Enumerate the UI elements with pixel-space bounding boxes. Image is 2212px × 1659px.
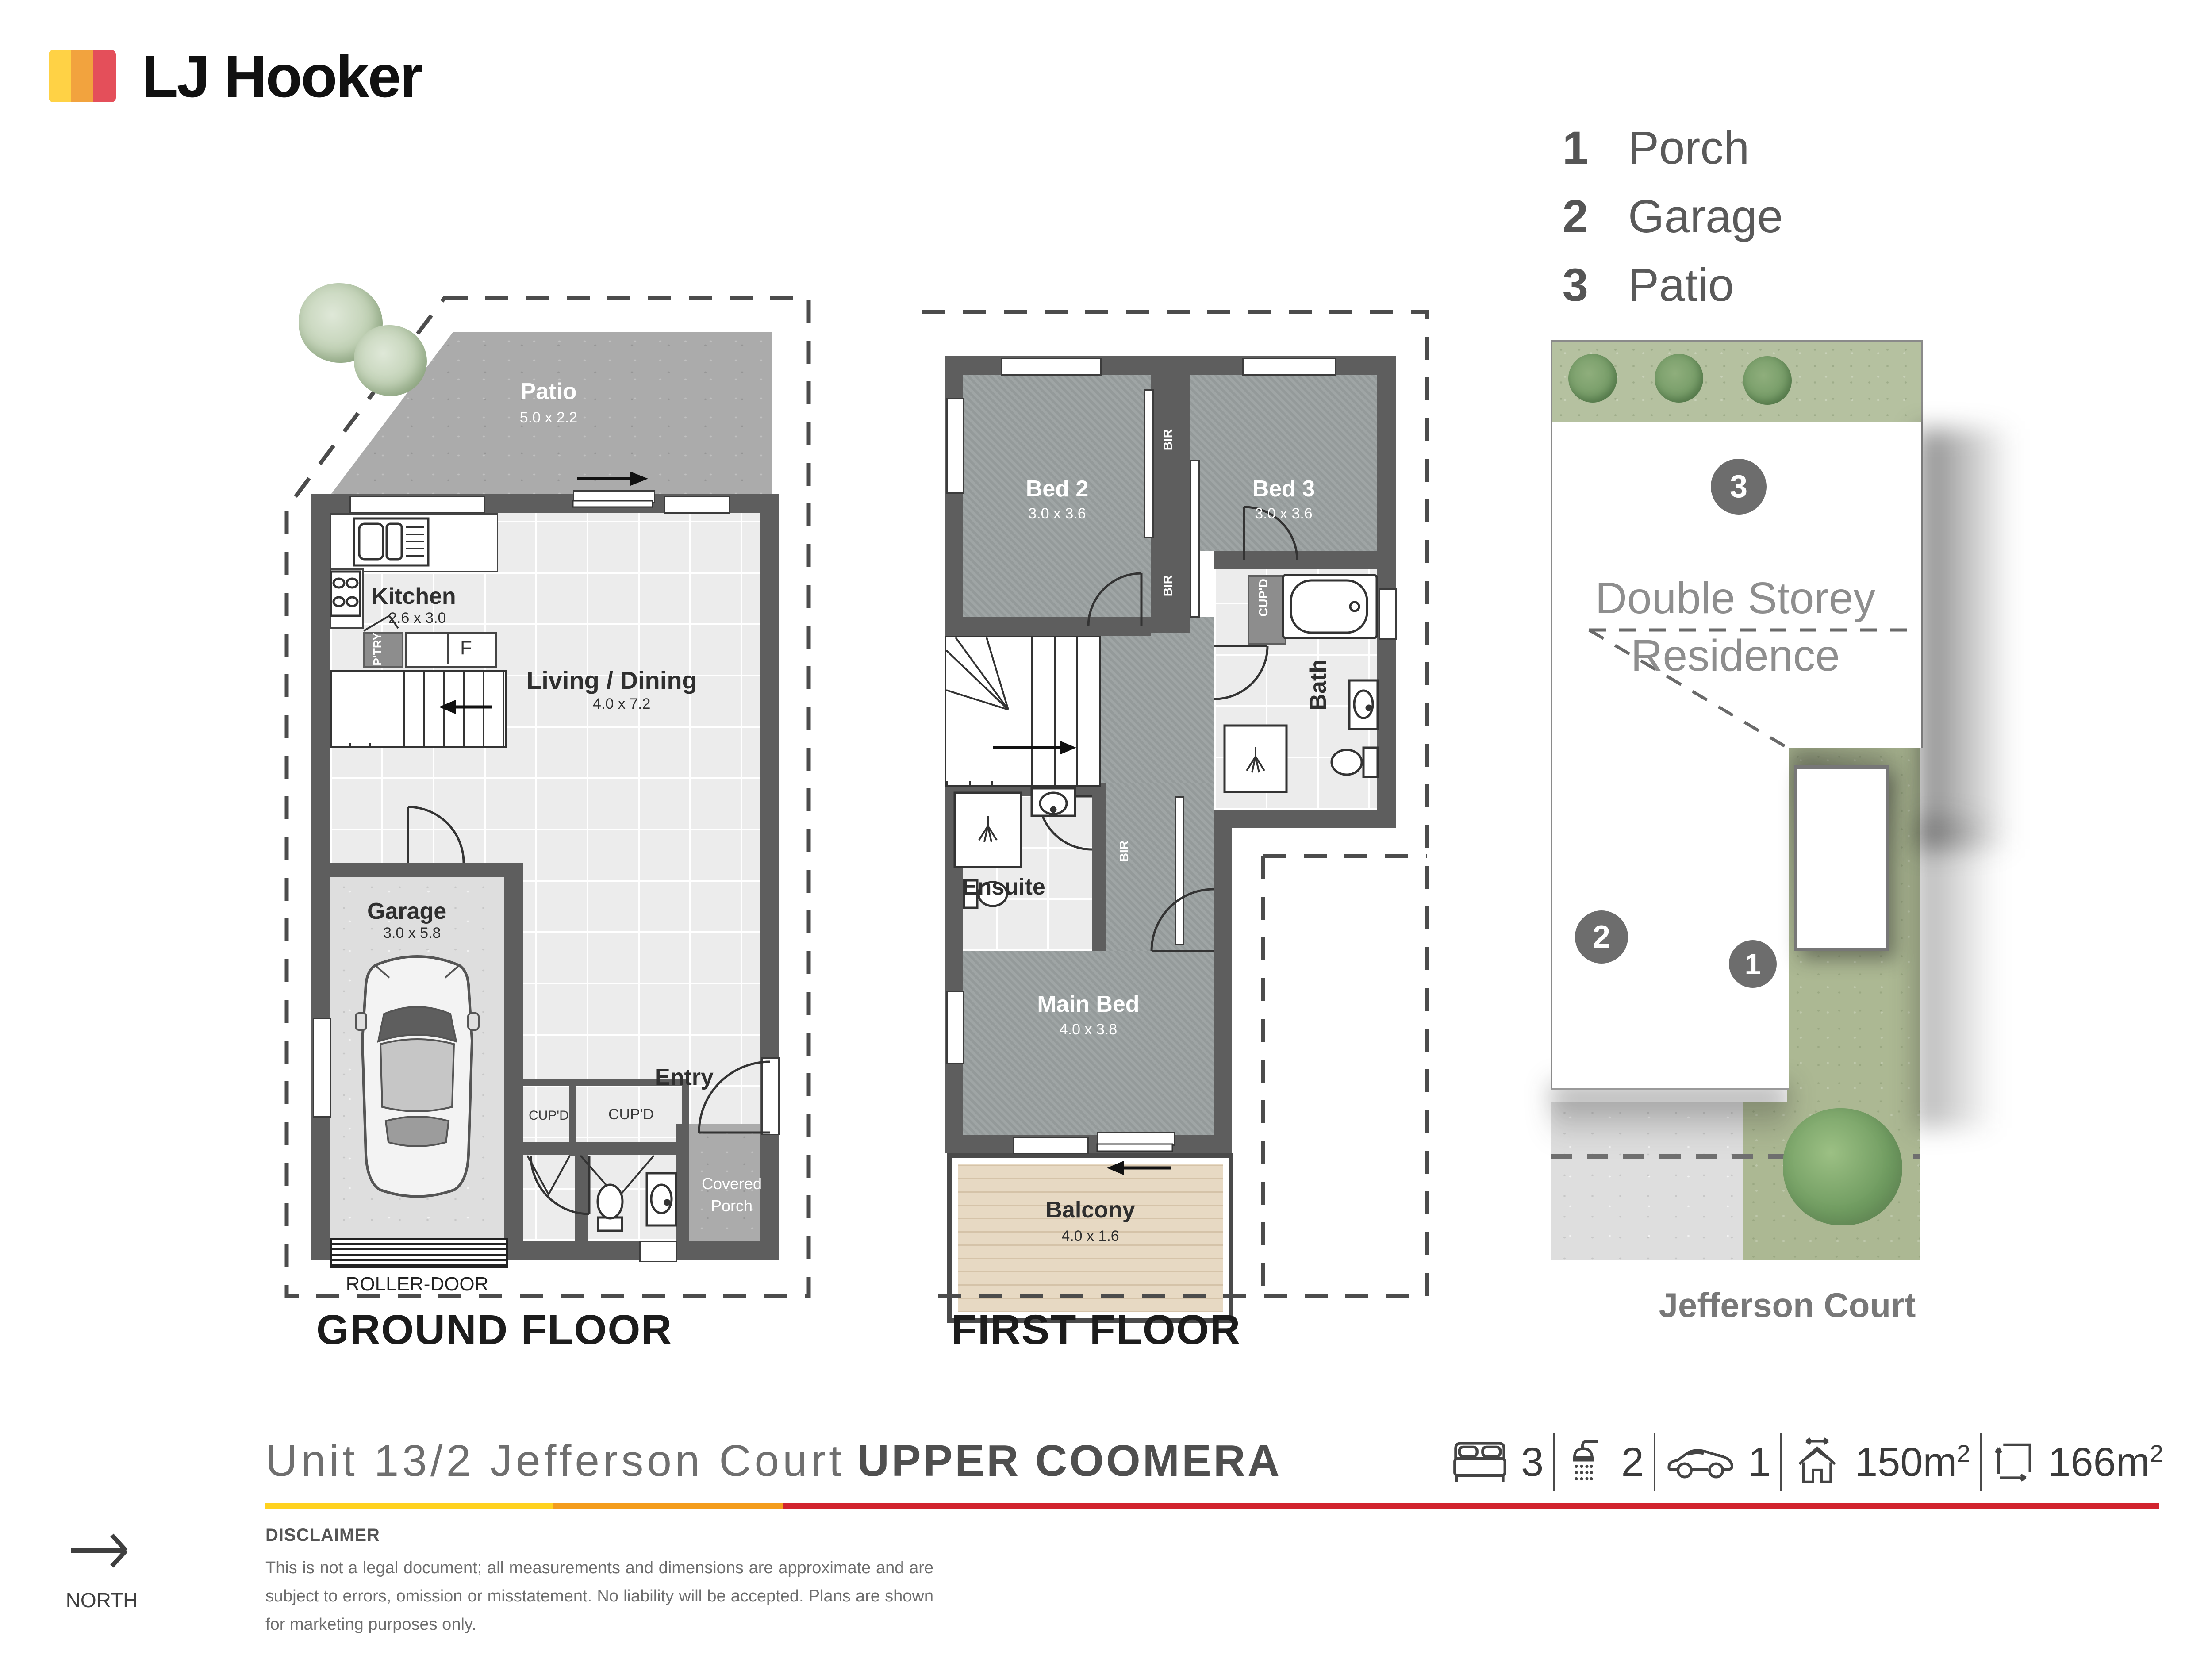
ff-balcony-dims: 4.0 x 1.6 xyxy=(947,1228,1233,1245)
gf-garage-wall-right xyxy=(504,863,523,1260)
ff-bed2-dims: 3.0 x 3.6 xyxy=(963,505,1151,522)
gf-garage-dims: 3.0 x 5.8 xyxy=(383,925,441,942)
address-street: Unit 13/2 Jefferson Court xyxy=(265,1436,845,1486)
disclaimer-title: DISCLAIMER xyxy=(265,1525,380,1545)
site-street-label: Jefferson Court xyxy=(1610,1285,1964,1325)
ff-bath-floor xyxy=(1214,569,1377,810)
ff-balcony-label: Balcony xyxy=(947,1197,1233,1223)
floorplan-page: LJ Hooker 1 Porch 2 Garage 3 Patio Patio… xyxy=(0,0,2212,1659)
ff-mainbed-side-window xyxy=(946,991,964,1064)
ff-wall-right-lower xyxy=(1214,810,1232,1153)
gf-fridge-divider xyxy=(447,634,449,664)
ff-bed3-wall-bottom xyxy=(1214,551,1396,569)
site-badge-garage: 2 xyxy=(1575,910,1628,964)
bush-icon xyxy=(1568,354,1617,403)
stat-beds-value: 3 xyxy=(1521,1439,1544,1486)
ff-bath-wall-bottom xyxy=(1214,810,1396,828)
gf-fridge-label: F xyxy=(460,637,472,659)
logo-text: LJ Hooker xyxy=(142,42,422,111)
ff-mainbed-label: Main Bed xyxy=(963,991,1214,1018)
stat-beds: 3 xyxy=(1451,1439,1544,1486)
ff-bed2-window xyxy=(1001,358,1102,376)
ff-mainbed-window xyxy=(1013,1137,1089,1154)
bush-icon xyxy=(1655,354,1703,403)
gf-kitchen-dims: 2.6 x 3.0 xyxy=(388,610,446,627)
brand-rule xyxy=(265,1503,2159,1509)
stat-baths: 2 xyxy=(1565,1437,1644,1488)
legend-num-3: 3 xyxy=(1548,259,1588,312)
ff-bed3-window xyxy=(1242,358,1336,376)
ff-bir1-label: BIR xyxy=(1161,429,1175,450)
first-floor-title: FIRST FLOOR xyxy=(951,1306,1241,1354)
gf-covered-porch-label1: Covered xyxy=(689,1175,774,1193)
stat-divider xyxy=(1780,1433,1782,1491)
disclaimer-body: This is not a legal document; all measur… xyxy=(265,1554,933,1639)
ff-mainbed-dims: 4.0 x 3.8 xyxy=(963,1021,1214,1038)
logo-stripe-red xyxy=(93,50,116,102)
rule-red xyxy=(783,1503,2159,1509)
gf-front-door-opening xyxy=(761,1057,780,1135)
ff-bed3-floor xyxy=(1190,375,1377,551)
gf-entry-label: Entry xyxy=(655,1064,714,1091)
ff-bed2-side-window xyxy=(946,398,964,494)
gf-covered-porch-label2: Porch xyxy=(689,1197,774,1215)
gf-cupd2-label: CUP'D xyxy=(608,1106,654,1123)
gf-cupd1-label: CUP'D xyxy=(529,1108,569,1123)
ff-bir-main-slider xyxy=(1175,796,1184,945)
site-badge-porch: 1 xyxy=(1729,940,1777,988)
stat-divider xyxy=(1980,1433,1982,1491)
gf-porch-threshold xyxy=(639,1241,677,1262)
ff-bir3-label: BIR xyxy=(1117,841,1131,862)
legend-label-garage: Garage xyxy=(1628,190,1783,243)
gf-roller-door xyxy=(330,1238,508,1268)
land-area-icon xyxy=(1991,1437,2035,1488)
gf-pantry-label: P'TRY xyxy=(371,633,384,666)
site-residence-label1: Double Storey xyxy=(1551,573,1920,624)
ff-cupd-label: CUP'D xyxy=(1256,579,1271,617)
bush-icon xyxy=(1743,356,1792,405)
gf-fridge xyxy=(405,632,497,668)
rule-orange xyxy=(553,1503,783,1509)
north-arrow-icon xyxy=(66,1522,146,1579)
gf-kitchen-counter-left xyxy=(330,568,364,629)
large-tree-icon xyxy=(1783,1108,1902,1225)
ff-ensuite-bir-wall xyxy=(1092,783,1106,951)
stat-divider xyxy=(1553,1433,1555,1491)
gf-wall-right xyxy=(760,494,779,1260)
gf-patio-dims: 5.0 x 2.2 xyxy=(482,409,615,426)
gf-wc-wall-top xyxy=(523,1142,683,1155)
ff-ensuite-label: Ensuite xyxy=(962,874,1045,900)
ff-boundary-step-dashed xyxy=(1263,856,1427,1296)
rule-yellow xyxy=(265,1503,553,1509)
ff-bed2-label: Bed 2 xyxy=(963,476,1151,502)
stat-baths-value: 2 xyxy=(1621,1439,1644,1486)
gf-roller-door-label: ROLLER-DOOR xyxy=(330,1273,504,1295)
tree-icon xyxy=(354,325,427,396)
ff-bir-main-floor xyxy=(1106,783,1214,951)
gf-wall-left xyxy=(311,494,330,1260)
stat-land-area: 166m2 xyxy=(1991,1437,2163,1488)
ff-bir2-label: BIR xyxy=(1161,575,1175,596)
ff-balcony-slider-door xyxy=(1097,1132,1175,1146)
address-suburb: UPPER COOMERA xyxy=(857,1436,1282,1486)
gf-living-window xyxy=(664,496,730,514)
building-shadow-bottom xyxy=(1551,1084,1790,1141)
ff-bed3-dims: 3.0 x 3.6 xyxy=(1190,505,1377,522)
gf-patio-label: Patio xyxy=(482,378,615,405)
gf-kitchen-window xyxy=(349,496,485,514)
legend-num-2: 2 xyxy=(1548,190,1588,243)
property-stats: 3 2 xyxy=(1451,1427,2163,1498)
site-porch-wing xyxy=(1794,765,1889,951)
ff-bed2-wall-bottom xyxy=(945,617,1151,636)
address: Unit 13/2 Jefferson Court UPPER COOMERA xyxy=(265,1436,1282,1486)
ff-ensuite-floor xyxy=(945,783,1092,951)
gf-living-label: Living / Dining xyxy=(526,666,697,695)
house-area-icon xyxy=(1792,1437,1843,1488)
legend-num-1: 1 xyxy=(1548,122,1588,175)
gf-wc-wall-side xyxy=(575,1155,588,1241)
car-icon xyxy=(1665,1440,1736,1484)
stat-divider xyxy=(1654,1433,1655,1491)
ff-bed3-label: Bed 3 xyxy=(1190,476,1377,502)
gf-garage-side-window xyxy=(313,1018,331,1118)
building-shadow xyxy=(1916,818,2017,1128)
logo-stripes-icon xyxy=(49,50,116,102)
gf-stairs-landing xyxy=(332,672,383,743)
shower-icon xyxy=(1565,1437,1609,1488)
legend-label-patio: Patio xyxy=(1628,259,1734,312)
gf-kitchen-counter xyxy=(330,513,498,572)
gf-garage-label: Garage xyxy=(367,898,446,925)
gf-garage-wall-top xyxy=(311,863,523,877)
gf-kitchen-label: Kitchen xyxy=(372,583,456,610)
bed-icon xyxy=(1451,1439,1509,1486)
site-residence-label2: Residence xyxy=(1551,630,1920,681)
ff-bath-label: Bath xyxy=(1305,659,1332,710)
ff-stairs-winder xyxy=(946,637,1008,781)
logo-stripe-yellow xyxy=(49,50,71,102)
lj-hooker-logo: LJ Hooker xyxy=(49,50,447,108)
stat-cars: 1 xyxy=(1665,1439,1770,1486)
north-label: NORTH xyxy=(62,1588,142,1612)
stat-house-area-value: 150m2 xyxy=(1855,1439,1970,1486)
ff-bath-window xyxy=(1379,588,1397,640)
ground-floor-title: GROUND FLOOR xyxy=(316,1306,672,1354)
ff-mainbed-floor xyxy=(963,951,1214,1135)
gf-living-dims: 4.0 x 7.2 xyxy=(593,695,650,713)
stat-house-area: 150m2 xyxy=(1792,1437,1970,1488)
logo-stripe-orange xyxy=(71,50,94,102)
gf-porch-wall xyxy=(676,1124,689,1260)
site-badge-patio: 3 xyxy=(1711,459,1767,515)
stat-land-area-value: 166m2 xyxy=(2048,1439,2163,1486)
gf-patio-slider-door xyxy=(573,490,655,503)
stat-cars-value: 1 xyxy=(1748,1439,1770,1486)
legend-label-porch: Porch xyxy=(1628,122,1749,175)
building-shadow xyxy=(1918,429,2037,849)
